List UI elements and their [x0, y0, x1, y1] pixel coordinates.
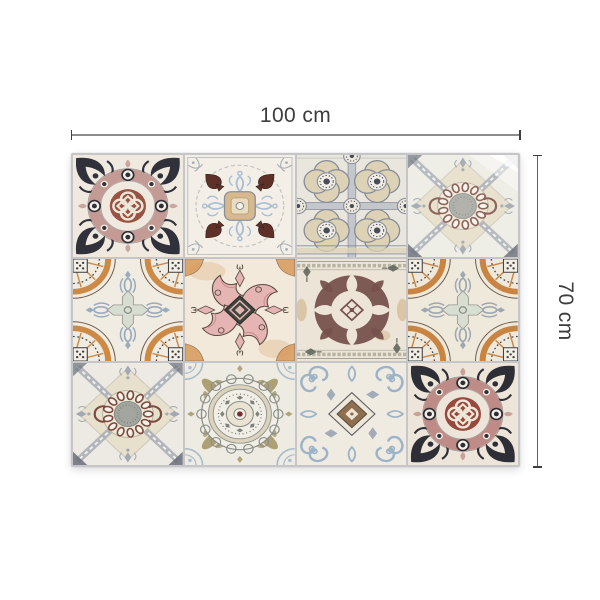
tile-x-ribbon — [408, 155, 518, 257]
height-dimension-label: 70 cm — [553, 281, 577, 340]
width-dimension-line — [71, 134, 520, 136]
tile-scallop-mandala — [185, 363, 295, 465]
tile-orange-fans — [73, 259, 183, 361]
svg-text:ω: ω — [236, 263, 244, 273]
product-photo-tile-grid: ωωωω — [71, 153, 520, 467]
tile-plum-damask — [297, 259, 407, 361]
tile-rose-medallion — [73, 155, 183, 257]
tile-rose-medallion — [408, 363, 518, 465]
height-dimension-tick-bottom — [533, 466, 543, 468]
tile-quatrefoil-grid — [297, 155, 407, 257]
product-dimension-figure: 100 cm 70 cm ωωωω — [0, 0, 600, 600]
width-dimension-tick-right — [519, 130, 521, 140]
svg-text:ω: ω — [236, 347, 244, 357]
tile-spade-square — [185, 155, 295, 257]
height-dimension-line — [537, 155, 539, 467]
tile-orange-fans — [408, 259, 518, 361]
tile-x-ribbon — [73, 363, 183, 465]
svg-text:ω: ω — [189, 306, 199, 313]
width-dimension-label: 100 cm — [71, 104, 520, 128]
height-dimension-tick-top — [533, 155, 543, 157]
tile-pink-damask: ωωωω — [185, 259, 295, 361]
tile-blue-scrolls — [297, 363, 407, 465]
width-dimension-tick-left — [71, 130, 73, 140]
svg-text:ω: ω — [280, 306, 290, 313]
